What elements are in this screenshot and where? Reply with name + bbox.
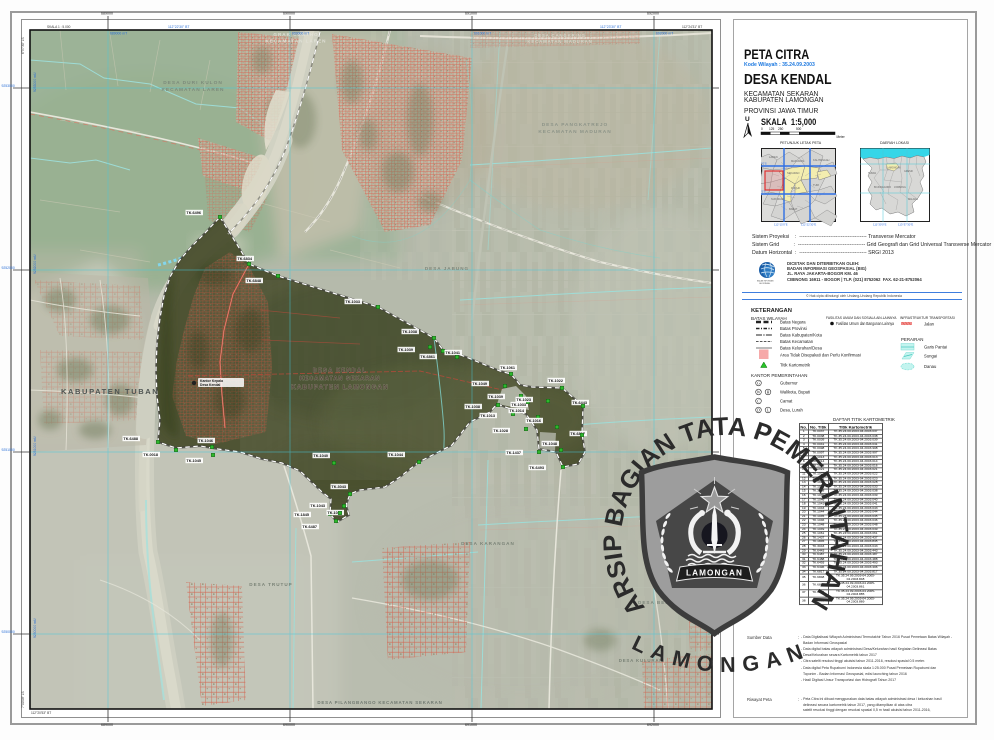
svg-text:TK.1045: TK.1045 <box>186 459 201 463</box>
svg-text:692000: 692000 <box>647 12 659 16</box>
svg-text:Area Tidak Disepakati dan Perl: Area Tidak Disepakati dan Perlu Konfirma… <box>780 353 861 358</box>
svg-text:TK.0018: TK.0018 <box>143 453 158 457</box>
svg-text:250: 250 <box>778 127 784 131</box>
svg-text:L: L <box>766 408 770 413</box>
svg-text:TK.1044: TK.1044 <box>388 453 403 457</box>
svg-text:SEKARAN: SEKARAN <box>787 171 800 175</box>
svg-text:TK.1049: TK.1049 <box>472 382 487 386</box>
svg-text:Batas Kabupaten/Kota: Batas Kabupaten/Kota <box>780 333 823 338</box>
svg-text:500: 500 <box>796 127 802 131</box>
svg-text:TK.1041: TK.1041 <box>445 351 460 355</box>
svg-text:TK.1033: TK.1033 <box>511 403 526 407</box>
svg-text:112°23'30" BT: 112°23'30" BT <box>600 25 621 29</box>
svg-text:KECAMATAN SEKARAN: KECAMATAN SEKARAN <box>300 376 381 382</box>
svg-text:G: G <box>757 381 760 386</box>
svg-text:113°37'30"E: 113°37'30"E <box>898 223 913 227</box>
svg-text:TK.1023: TK.1023 <box>516 398 531 402</box>
svg-text:TK.3043: TK.3043 <box>331 485 346 489</box>
svg-text:BOJONEGORO: BOJONEGORO <box>874 186 891 189</box>
svg-text:PUCUK: PUCUK <box>791 186 800 190</box>
svg-text:KABUPATEN TUBAN: KABUPATEN TUBAN <box>61 387 159 396</box>
svg-text:DESA KULURAN: DESA KULURAN <box>619 658 664 663</box>
svg-text:691000 mT: 691000 mT <box>474 32 491 36</box>
svg-text:LAREN: LAREN <box>769 155 778 159</box>
svg-text:112°15'0"E: 112°15'0"E <box>774 223 788 227</box>
svg-text:DESA TRUTUP: DESA TRUTUP <box>249 582 293 587</box>
svg-text:Batas Negara: Batas Negara <box>780 320 806 325</box>
svg-text:GRESIK: GRESIK <box>904 170 913 173</box>
svg-text:GEOSPASIAL: GEOSPASIAL <box>759 282 770 285</box>
svg-text:TK.1043: TK.1043 <box>310 504 325 508</box>
svg-text:TK.1039: TK.1039 <box>398 348 413 352</box>
svg-text:TK.6496: TK.6496 <box>186 211 201 215</box>
svg-text:9250000: 9250000 <box>2 630 15 634</box>
svg-text:DESA JABUNG: DESA JABUNG <box>425 266 469 271</box>
svg-text:PERAIRAN: PERAIRAN <box>901 337 923 342</box>
svg-text:TK.1039: TK.1039 <box>488 395 503 399</box>
svg-text:U: U <box>745 116 750 123</box>
svg-text:Desa Kendal: Desa Kendal <box>200 383 220 387</box>
svg-text:689000 mT: 689000 mT <box>110 32 127 36</box>
svg-text:Gubernur: Gubernur <box>780 381 798 386</box>
svg-text:B: B <box>767 390 770 395</box>
svg-text:BABAT: BABAT <box>789 207 798 211</box>
svg-text:9251000 mU: 9251000 mU <box>33 436 37 456</box>
svg-text:9252000: 9252000 <box>2 266 15 270</box>
svg-text:689000: 689000 <box>101 12 113 16</box>
svg-text:Camat: Camat <box>780 399 793 404</box>
svg-text:Garis Pantai: Garis Pantai <box>924 345 947 350</box>
svg-text:Jalan: Jalan <box>924 322 935 327</box>
svg-text:TK.1040: TK.1040 <box>313 454 328 458</box>
svg-text:112°20'53" BT: 112°20'53" BT <box>31 711 51 715</box>
svg-text:KALITENGAH: KALITENGAH <box>813 158 830 162</box>
svg-text:Desa, Lurah: Desa, Lurah <box>780 408 803 413</box>
svg-text:690000: 690000 <box>283 12 295 16</box>
svg-text:D: D <box>756 408 760 413</box>
svg-text:TK.1061: TK.1061 <box>500 366 515 370</box>
svg-text:KABUPATEN LAMONGAN: KABUPATEN LAMONGAN <box>291 384 389 391</box>
svg-text:9251000: 9251000 <box>2 448 15 452</box>
svg-text:KECAMATAN LAREN: KECAMATAN LAREN <box>161 87 224 93</box>
svg-text:692000: 692000 <box>647 723 659 727</box>
svg-text:KECAMATAN LAREN: KECAMATAN LAREN <box>265 39 326 44</box>
svg-text:9253000: 9253000 <box>2 84 15 88</box>
svg-text:Danau: Danau <box>924 364 937 369</box>
svg-text:TK.6487: TK.6487 <box>302 525 317 529</box>
svg-text:Batas Provinsi: Batas Provinsi <box>780 326 807 331</box>
svg-text:7°0'S: 7°0'S <box>761 162 767 166</box>
svg-text:690000 mT: 690000 mT <box>292 32 309 36</box>
svg-text:112°24'31" BT: 112°24'31" BT <box>682 25 702 29</box>
svg-text:TK.6493: TK.6493 <box>529 466 544 470</box>
svg-text:Sungai: Sungai <box>924 354 937 359</box>
svg-text:SUKODADI: SUKODADI <box>771 197 785 201</box>
svg-text:7°00'08" LS: 7°00'08" LS <box>21 691 25 708</box>
svg-text:TK.6488: TK.6488 <box>123 437 138 441</box>
svg-text:TUBAN: TUBAN <box>868 172 876 175</box>
svg-text:690000: 690000 <box>283 723 295 727</box>
svg-text:TK.1016: TK.1016 <box>526 419 541 423</box>
svg-text:JOMBANG: JOMBANG <box>894 186 906 189</box>
svg-text:MADURAN: MADURAN <box>791 159 804 163</box>
svg-text:TK.1048: TK.1048 <box>542 442 557 446</box>
svg-text:Batas Kelurahan/Desa: Batas Kelurahan/Desa <box>780 346 823 351</box>
svg-text:TURI: TURI <box>813 183 819 187</box>
svg-text:KECAMATAN MADURAN: KECAMATAN MADURAN <box>527 39 592 44</box>
svg-text:Fasilitas Umum dan Bangunan La: Fasilitas Umum dan Bangunan Lainnya <box>836 321 895 326</box>
svg-text:TK.1014: TK.1014 <box>509 409 524 413</box>
svg-text:TK.6834: TK.6834 <box>237 257 252 261</box>
svg-text:TK.1845: TK.1845 <box>294 513 309 517</box>
svg-text:TK.6861: TK.6861 <box>420 355 435 359</box>
svg-text:Meter: Meter <box>837 135 846 139</box>
svg-text:MALANG: MALANG <box>908 198 918 201</box>
svg-text:DESA KENDAL: DESA KENDAL <box>313 368 367 374</box>
svg-text:112°22'30"E: 112°22'30"E <box>801 223 816 227</box>
svg-text:9252000 mU: 9252000 mU <box>33 254 37 274</box>
svg-text:DESA KARANGAN: DESA KARANGAN <box>461 541 515 546</box>
svg-text:112°22'30" BT: 112°22'30" BT <box>168 25 189 29</box>
svg-text:7°5'S: 7°5'S <box>761 190 766 194</box>
svg-text:111°30'0"E: 111°30'0"E <box>873 223 887 227</box>
svg-text:Batas Kecamatan: Batas Kecamatan <box>780 339 814 344</box>
svg-text:LAMONGAN: LAMONGAN <box>887 167 901 170</box>
svg-text:DESA PILANGBANGO KECAMATAN SEK: DESA PILANGBANGO KECAMATAN SEKARAN <box>317 700 442 705</box>
svg-text:Titik Kartometrik: Titik Kartometrik <box>780 363 811 368</box>
svg-text:TK.1038: TK.1038 <box>402 330 417 334</box>
svg-text:691000: 691000 <box>465 723 477 727</box>
svg-text:TK.1022: TK.1022 <box>548 379 563 383</box>
svg-text:DESA PANGKATREJO: DESA PANGKATREJO <box>542 122 609 128</box>
svg-text:TK.1013: TK.1013 <box>480 414 495 418</box>
svg-text:DESA BESUR: DESA BESUR <box>638 600 678 605</box>
svg-text:KECAMATAN MADURAN: KECAMATAN MADURAN <box>538 129 611 135</box>
svg-text:0: 0 <box>761 127 763 131</box>
svg-text:6°57'30" LS: 6°57'30" LS <box>21 37 25 54</box>
svg-text:692000 mT: 692000 mT <box>656 32 673 36</box>
svg-text:Walikota, Bupati: Walikota, Bupati <box>780 390 810 395</box>
svg-text:TK.1038: TK.1038 <box>465 405 480 409</box>
svg-text:DESA DURI KULON: DESA DURI KULON <box>163 80 223 86</box>
svg-text:TK.1028: TK.1028 <box>493 429 508 433</box>
svg-text:125: 125 <box>769 127 775 131</box>
svg-text:TK.1033: TK.1033 <box>345 300 360 304</box>
svg-text:TK.1046: TK.1046 <box>198 439 213 443</box>
svg-text:689000: 689000 <box>101 723 113 727</box>
svg-text:W: W <box>757 390 761 395</box>
svg-text:SKALA 1 : 5.000: SKALA 1 : 5.000 <box>47 25 71 29</box>
svg-text:TK.1437: TK.1437 <box>506 451 521 455</box>
svg-text:DESA CANGKRING: DESA CANGKRING <box>534 33 586 38</box>
svg-text:9253000 mU: 9253000 mU <box>33 72 37 92</box>
svg-text:9250000 mU: 9250000 mU <box>33 618 37 638</box>
svg-text:691000: 691000 <box>465 12 477 16</box>
svg-text:C: C <box>757 399 760 404</box>
svg-text:TK.6848: TK.6848 <box>246 279 261 283</box>
